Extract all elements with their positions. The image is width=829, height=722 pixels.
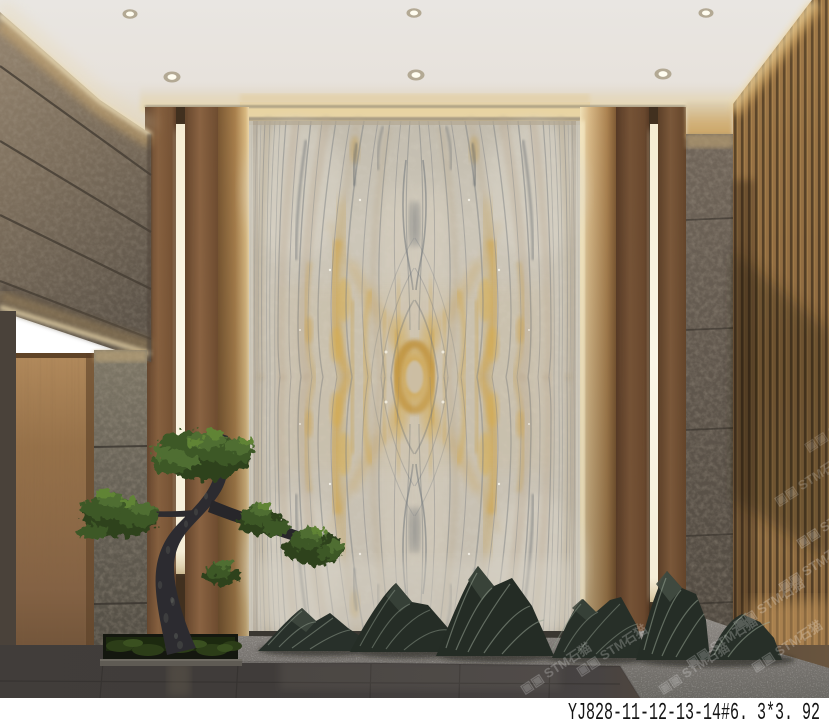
svg-text:YJ828-11-12-13-14#6. 3*3. 92: YJ828-11-12-13-14#6. 3*3. 92 xyxy=(568,700,820,722)
